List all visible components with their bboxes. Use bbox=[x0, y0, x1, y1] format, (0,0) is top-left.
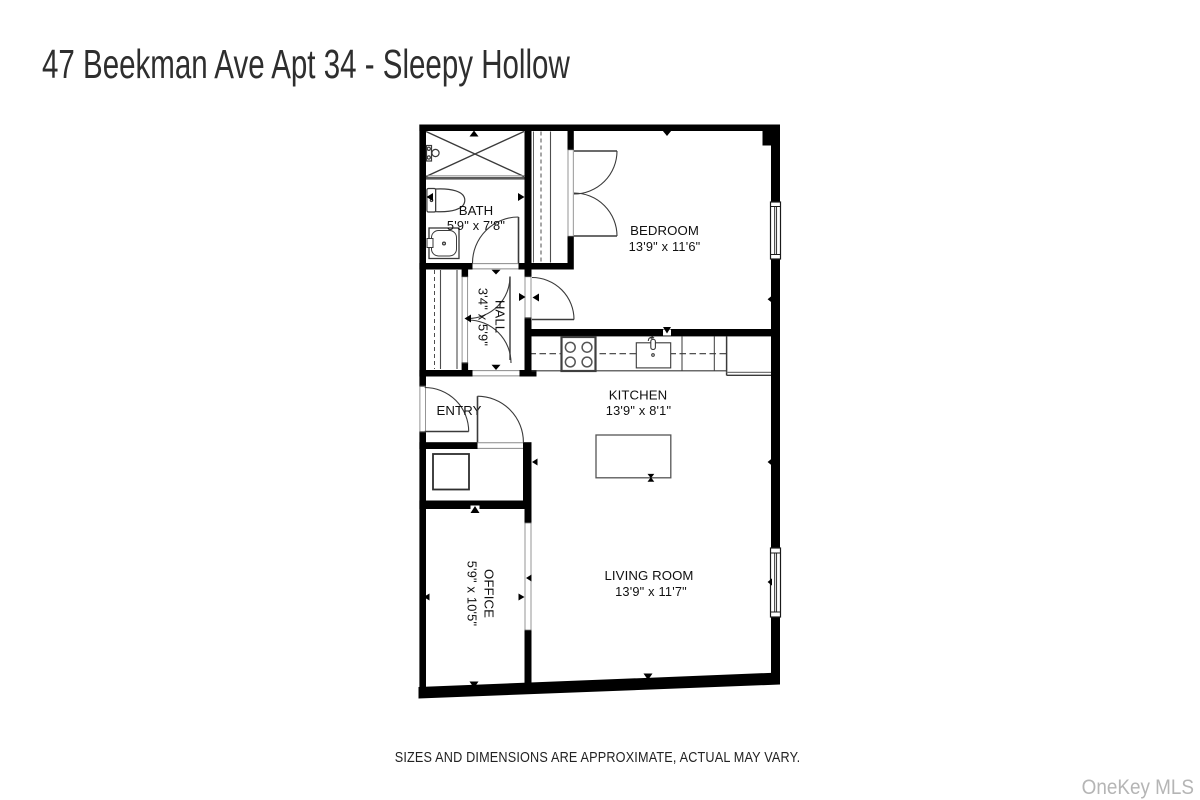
svg-text:5'9" x 7'8": 5'9" x 7'8" bbox=[447, 218, 505, 233]
svg-text:BATH: BATH bbox=[459, 203, 494, 218]
svg-text:3'4" x 5'9": 3'4" x 5'9" bbox=[476, 288, 491, 346]
svg-text:13'9" x 11'7": 13'9" x 11'7" bbox=[615, 584, 687, 599]
svg-text:BEDROOM: BEDROOM bbox=[630, 223, 699, 238]
svg-text:OneKey MLS: OneKey MLS bbox=[1082, 776, 1194, 799]
svg-text:13'9" x 8'1": 13'9" x 8'1" bbox=[606, 403, 671, 418]
svg-text:ENTRY: ENTRY bbox=[437, 403, 482, 418]
svg-text:13'9" x 11'6": 13'9" x 11'6" bbox=[629, 239, 701, 254]
svg-text:KITCHEN: KITCHEN bbox=[609, 388, 668, 403]
svg-text:47 Beekman Ave Apt 34 - Sleepy: 47 Beekman Ave Apt 34 - Sleepy Hollow bbox=[42, 41, 570, 87]
svg-text:LIVING ROOM: LIVING ROOM bbox=[604, 568, 693, 583]
svg-text:SIZES AND DIMENSIONS ARE APPRO: SIZES AND DIMENSIONS ARE APPROXIMATE, AC… bbox=[395, 748, 801, 765]
svg-text:HALL: HALL bbox=[493, 300, 508, 333]
svg-text:OFFICE: OFFICE bbox=[482, 569, 497, 618]
svg-text:5'9" x 10'5": 5'9" x 10'5" bbox=[465, 561, 480, 626]
